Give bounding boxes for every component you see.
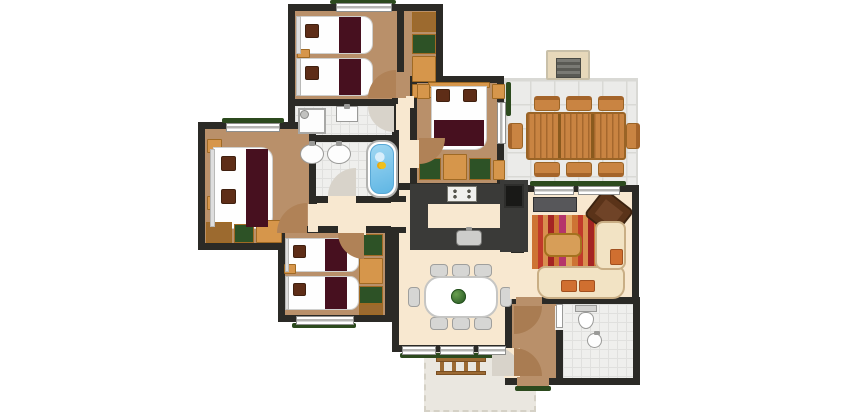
double-bed-pillow-1 — [436, 89, 450, 102]
hall-wardrobe-1 — [412, 12, 436, 32]
twin-top-bed1-headboard — [296, 16, 301, 54]
window-dining-3 — [478, 346, 506, 355]
window-twin-bottom — [296, 316, 354, 325]
master-pillow-1 — [221, 156, 236, 171]
dining-table-plant — [451, 289, 466, 304]
passage-lounge-dining — [510, 253, 528, 299]
window-master — [226, 123, 280, 132]
bathroom-tap-2 — [336, 141, 342, 146]
sofa-cushion-2 — [561, 280, 577, 292]
hedge-double-bedroom — [506, 82, 511, 116]
double-wardrobe-2 — [443, 154, 467, 180]
doorway-master-bedroom — [308, 204, 318, 232]
shower-basin-tap — [344, 104, 350, 109]
coffee-table — [544, 233, 582, 257]
twin-bottom-bed2-blanket — [325, 277, 347, 309]
twin-top-bed2-pillow — [305, 66, 319, 80]
patio-chair-north-3 — [598, 96, 624, 111]
patio-chair-east — [626, 123, 640, 149]
doorway-twin-top-hall — [396, 72, 406, 98]
wc-sink — [587, 333, 602, 348]
dining-chair-west — [408, 287, 420, 307]
twin-top-bed1-pillow — [305, 24, 319, 38]
window-lounge-1 — [534, 186, 574, 195]
twin-bottom-bed2-pillow — [293, 283, 306, 296]
twin-bottom-bed2-headboard — [285, 276, 289, 310]
passage-hallway-openplan — [391, 202, 409, 227]
double-bed-pillow-2 — [463, 89, 477, 102]
doorway-entry-lounge — [516, 297, 542, 306]
kitchen-oven — [504, 184, 524, 208]
patio-chair-south-2 — [566, 162, 592, 177]
terrace-bench-leg-1 — [440, 362, 444, 371]
terrace-bench-rail-2 — [436, 371, 486, 375]
sofa-cushion-1 — [610, 249, 623, 265]
wc-door-leaf — [556, 304, 563, 328]
doorway-shower-room — [396, 104, 406, 130]
dining-chair-south-3 — [474, 317, 492, 330]
patio-chair-north-2 — [566, 96, 592, 111]
master-bed-headboard — [210, 149, 215, 227]
bathroom-sink-1 — [300, 144, 324, 164]
hallway-west-floor — [317, 203, 399, 226]
master-pillow-2 — [221, 189, 236, 204]
twin-top-bed2-headboard — [296, 58, 301, 96]
doorway-double-bedroom — [409, 140, 419, 168]
patio-chair-south-1 — [534, 162, 560, 177]
floorplan-canvas — [0, 0, 841, 415]
patio-table — [526, 112, 626, 160]
sofa-cushion-3 — [579, 280, 595, 292]
dining-chair-south-2 — [452, 317, 470, 330]
window-dining-2 — [440, 346, 474, 355]
kitchen-sink-tap — [466, 227, 472, 231]
bathroom-sink-2 — [327, 144, 351, 164]
twin-bottom-wardrobe-3 — [359, 286, 383, 304]
bbq-grill — [556, 58, 581, 78]
kitchen-hob — [447, 186, 477, 202]
twin-bottom-bed1-pillow — [293, 245, 306, 258]
double-wardrobe-3 — [469, 158, 491, 180]
twin-bottom-bed1-headboard — [285, 238, 289, 272]
double-wardrobe-4 — [493, 160, 505, 180]
patio-chair-south-3 — [598, 162, 624, 177]
hedge-front-door — [515, 386, 551, 391]
double-nightstand-1 — [417, 84, 430, 99]
hall-wardrobe-2 — [412, 34, 436, 54]
twin-bottom-wardrobe-4 — [359, 304, 383, 315]
master-blanket — [246, 149, 268, 227]
window-dining-1 — [402, 346, 436, 355]
dining-chair-south-1 — [430, 317, 448, 330]
window-lounge-2 — [578, 186, 620, 195]
window-twin-top — [336, 3, 392, 12]
twin-top-bed1-blanket — [339, 17, 361, 53]
doorway-bathroom — [328, 195, 356, 205]
terrace-bench-leg-2 — [452, 362, 456, 371]
double-nightstand-2 — [492, 84, 505, 99]
tv-unit — [533, 197, 577, 212]
bathtub-water — [370, 144, 394, 194]
wc-sink-tap — [594, 331, 600, 335]
window-double-bedroom — [497, 102, 506, 144]
patio-chair-west — [508, 123, 523, 149]
twin-bottom-wardrobe-2 — [359, 258, 383, 284]
shower-head — [300, 110, 309, 119]
wc-toilet-tank — [575, 305, 597, 312]
bathroom-tap-1 — [309, 141, 315, 146]
kitchen-sink — [456, 230, 482, 246]
patio-chair-north-1 — [534, 96, 560, 111]
twin-top-bed2-blanket — [339, 59, 361, 95]
terrace-bench-leg-3 — [464, 362, 468, 371]
terrace-bench-leg-4 — [476, 362, 480, 371]
bathtub-duck — [379, 162, 386, 169]
hall-wardrobe-3 — [412, 56, 436, 82]
